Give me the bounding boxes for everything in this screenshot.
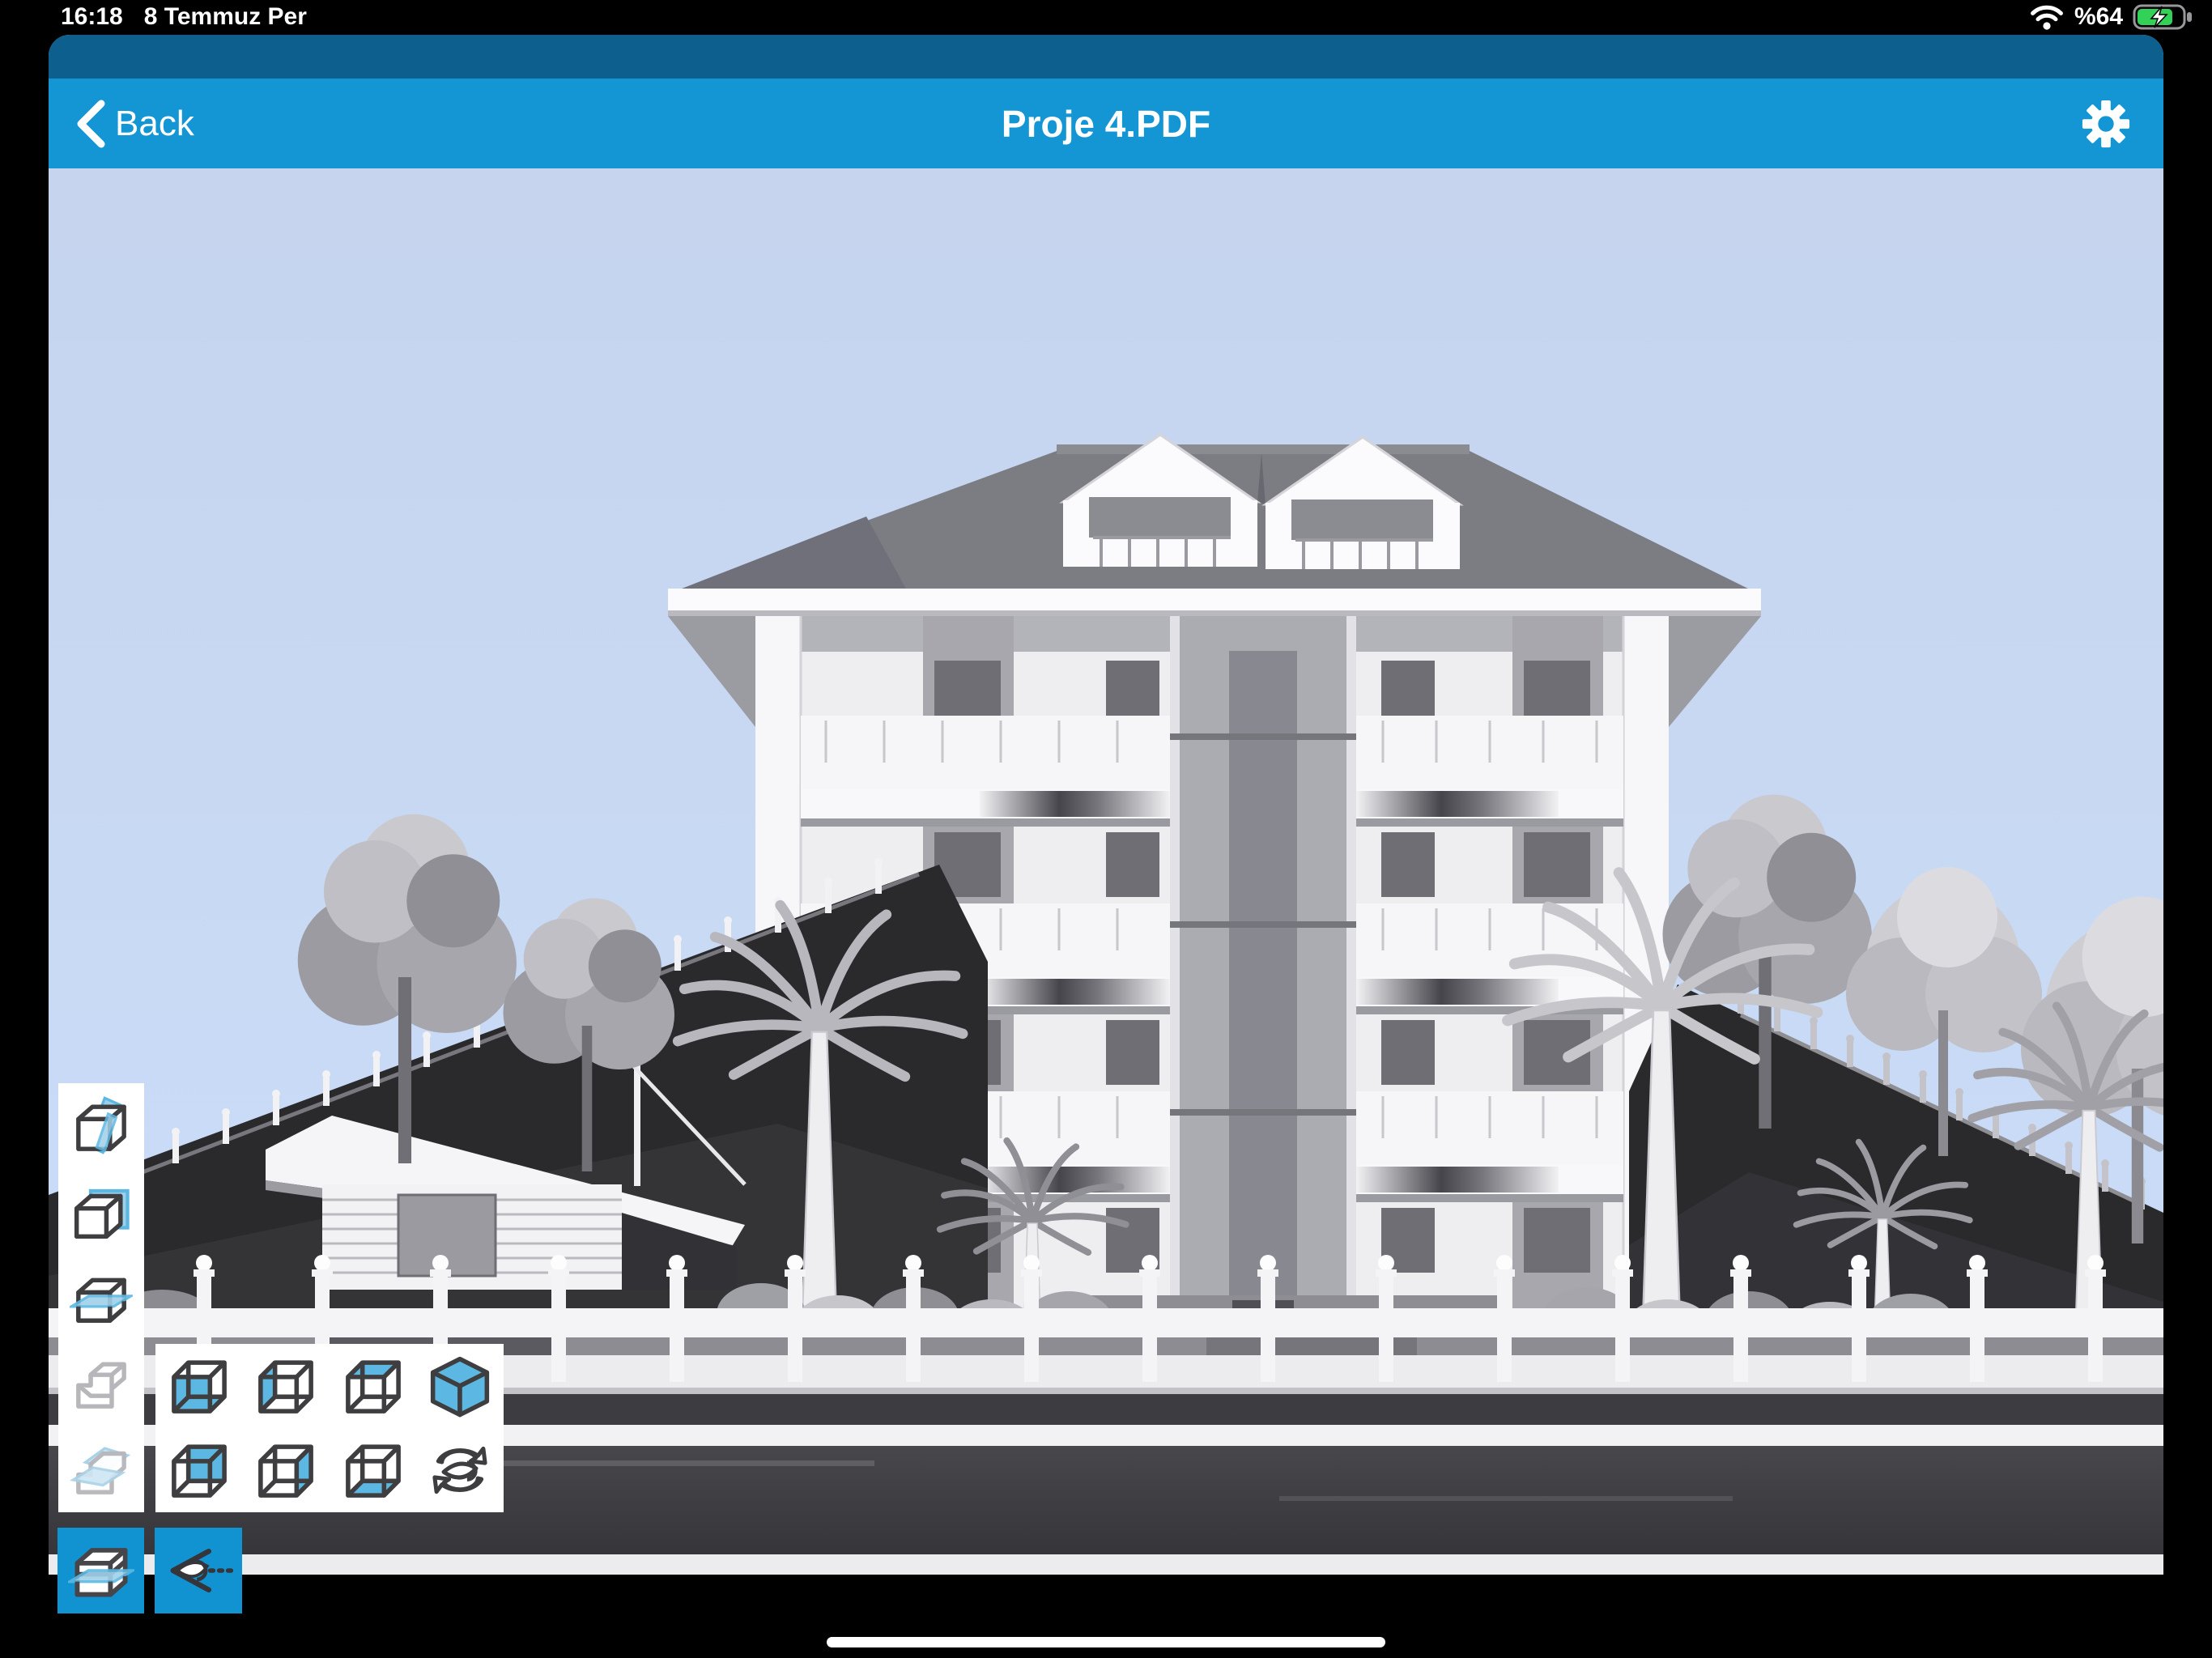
battery-icon (2133, 2, 2194, 32)
section-stepped-box-planes-icon (70, 1438, 133, 1501)
chevron-left-icon (74, 99, 107, 149)
section-stepped-box-button[interactable] (58, 1341, 144, 1426)
date: 8 Temmuz Per (144, 3, 307, 31)
section-box-vertical-plane-button[interactable] (58, 1083, 144, 1169)
settings-button[interactable] (2081, 99, 2131, 149)
wifi-icon (2029, 3, 2065, 31)
eye-profile-icon (163, 1542, 234, 1599)
view-orbit-icon (428, 1438, 492, 1503)
view-isometric-button[interactable] (417, 1344, 504, 1428)
view-front-button[interactable] (155, 1344, 243, 1428)
back-label: Back (115, 104, 194, 144)
view-left-icon (253, 1354, 318, 1418)
home-indicator[interactable] (827, 1637, 1385, 1647)
section-box-back-plane-icon (70, 1180, 133, 1243)
view-back-icon (167, 1438, 232, 1503)
view-right-icon (253, 1438, 318, 1503)
view-bottom-button[interactable] (330, 1428, 417, 1512)
view-isometric-icon (428, 1354, 492, 1418)
battery-percent: %64 (2074, 3, 2123, 31)
view-right-button[interactable] (243, 1428, 330, 1512)
section-slab-icon (68, 1537, 134, 1604)
view-top-button[interactable] (330, 1344, 417, 1428)
section-stepped-box-icon (70, 1352, 133, 1415)
view-tools-panel (155, 1344, 504, 1512)
hide-view-tool-button[interactable] (155, 1528, 242, 1613)
back-button[interactable]: Back (74, 99, 194, 149)
nav-top-strip (49, 35, 2163, 79)
page-title: Proje 4.PDF (49, 102, 2163, 146)
section-box-back-plane-button[interactable] (58, 1169, 144, 1255)
section-tools-panel (58, 1083, 144, 1512)
view-top-icon (341, 1354, 406, 1418)
status-bar: 16:18 8 Temmuz Per %64 (0, 0, 2212, 35)
view-back-button[interactable] (155, 1428, 243, 1512)
view-orbit-button[interactable] (417, 1428, 504, 1512)
section-box-horizontal-plane-button[interactable] (58, 1255, 144, 1341)
section-stepped-box-planes-button[interactable] (58, 1426, 144, 1512)
section-slab-tool-button[interactable] (57, 1528, 144, 1613)
view-front-icon (167, 1354, 232, 1418)
section-box-vertical-plane-icon (70, 1095, 133, 1158)
gear-icon (2081, 99, 2131, 149)
view-bottom-icon (341, 1438, 406, 1503)
navigation-bar: Back Proje 4.PDF (49, 79, 2163, 168)
section-box-horizontal-plane-icon (70, 1266, 133, 1329)
clock: 16:18 (61, 3, 123, 31)
view-left-button[interactable] (243, 1344, 330, 1428)
